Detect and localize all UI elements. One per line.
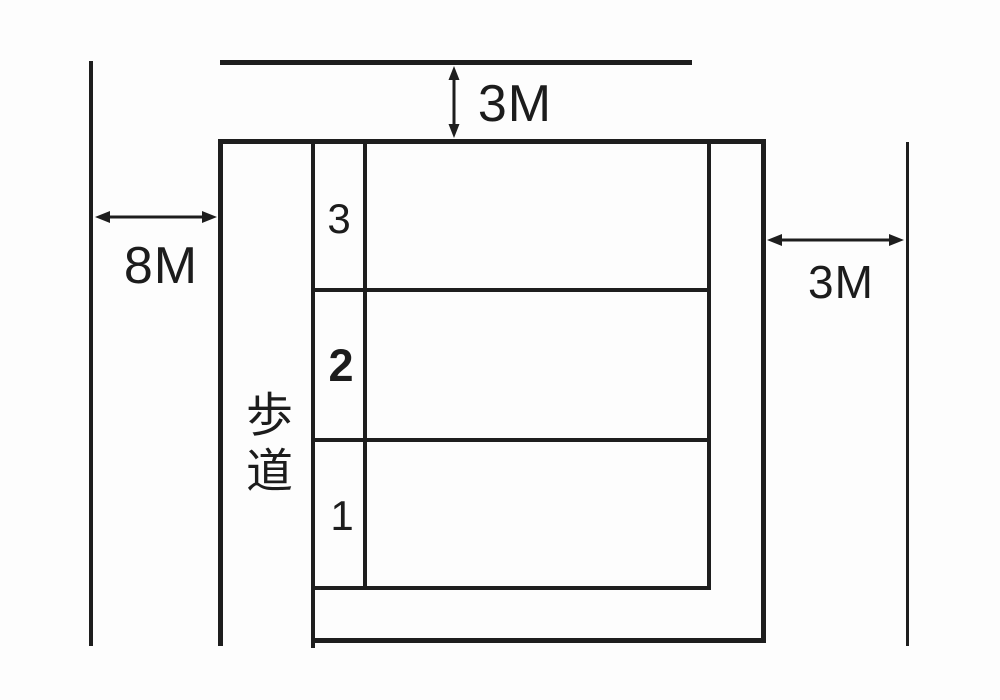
outer-boundary-top-line <box>218 139 766 144</box>
outer-boundary-left-line <box>218 139 223 646</box>
right-dimension-double-arrow-icon <box>766 229 905 251</box>
left-dimension-double-arrow-icon <box>94 206 218 228</box>
left-dimension-label: 8M <box>101 238 221 294</box>
section-1-number: 1 <box>317 494 367 538</box>
right-dimension-label: 3M <box>781 257 901 307</box>
right-road-edge-line <box>906 142 909 646</box>
section2-section1-divider-line <box>311 438 711 442</box>
section3-section2-divider-line <box>311 288 711 292</box>
outer-boundary-bottom-line <box>311 638 766 643</box>
sidewalk-label: 歩道 <box>240 390 290 502</box>
top-dimension-label: 3M <box>455 76 575 132</box>
section-2-number: 2 <box>316 344 366 388</box>
left-road-edge-line <box>89 61 93 646</box>
inner-block-bottom-line <box>311 586 711 590</box>
outer-boundary-right-line <box>761 139 766 643</box>
inner-block-right-line <box>707 141 711 590</box>
site-plan-diagram: 3M 8M 3M 歩道 3 2 1 <box>0 0 1000 700</box>
section-3-number: 3 <box>314 197 364 241</box>
